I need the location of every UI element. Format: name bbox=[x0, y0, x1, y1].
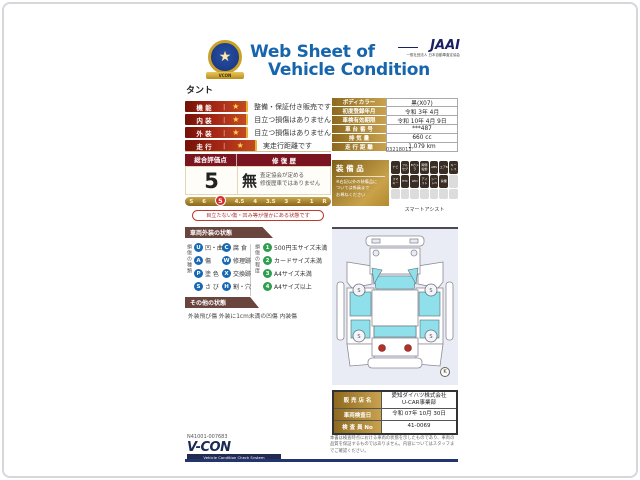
equipment-badge-empty bbox=[439, 189, 448, 199]
equipment-badge-empty bbox=[449, 175, 458, 188]
rating-desc: 実走行距離です bbox=[263, 141, 312, 151]
legend-text: 腐 食 bbox=[233, 243, 247, 252]
scale-tick: S bbox=[189, 199, 193, 205]
equipment-note: ※右記以外の装備品に ついては係員まで お尋ねください bbox=[336, 179, 385, 198]
other-condition-text: 外装飛び傷 外装に1cm未満の凹傷 内装傷 bbox=[188, 311, 297, 320]
repair-history: 無 査定協会が定める 修復歴車ではありません bbox=[238, 167, 330, 194]
scale-tick: R bbox=[322, 199, 326, 205]
jaai-logo: JAAI bbox=[416, 38, 460, 53]
legend-text: 塗 色 bbox=[205, 269, 219, 278]
table-row: 車検有効期限 令和 10年 4月 9日 bbox=[332, 116, 458, 125]
grade-note-balloon: 目立たない傷・凹み等が僅かにある状態です bbox=[192, 210, 324, 221]
equipment-badge: アイ​スト bbox=[420, 175, 429, 188]
rating-chip: 走 行 | ★ bbox=[185, 140, 257, 151]
spec-label: 排 気 量 bbox=[332, 134, 386, 143]
badge-row: スマ​キー ETC LED アイ​スト シー​トH 禁煙 bbox=[391, 175, 458, 188]
legend-item: S さ び bbox=[194, 282, 219, 291]
table-row: 販 売 店 名 愛知ダイハツ株式会社 U-CAR事業部 bbox=[334, 392, 456, 409]
equipment-badge: フル​セグ bbox=[401, 161, 410, 174]
equipment-badge: キー​レス bbox=[449, 161, 458, 174]
star-icon: ★ bbox=[225, 141, 255, 150]
vcon-emblem-icon: ★ bbox=[208, 40, 242, 74]
equipment-badge: エアB bbox=[439, 161, 448, 174]
spec-table: ボディカラー 黒(X07) 初度登録年月 令和 3年 4月 車検有効期限 令和 … bbox=[332, 98, 458, 152]
score-header: 総合評価点 bbox=[185, 154, 237, 166]
rating-chip: 機 能 | ★ bbox=[185, 101, 248, 112]
badge-row bbox=[391, 189, 458, 199]
page-title-line1: Web Sheet of bbox=[250, 42, 375, 62]
jaai-subtitle: 一般社団法人 日本自動車査定協会 bbox=[390, 53, 460, 58]
equipment-badge-empty bbox=[410, 189, 419, 199]
page-title-line2: Vehicle Condition bbox=[268, 60, 430, 80]
legend-text: さ び bbox=[205, 282, 219, 291]
section-exterior-condition: 車両外装の状態 bbox=[185, 227, 273, 238]
equipment-footnote: スマートアシスト bbox=[391, 206, 458, 213]
legend-item: 1 500円玉サイズ未満 bbox=[263, 243, 327, 252]
badge-row: ナビ フル​セグ Bカ​メラ 両側​電動 ABS エアB キー​レス bbox=[391, 161, 458, 174]
disclaimer-text: 本書は検査時点における車両の状態を示したものであり、車両の品質を保証するものでは… bbox=[330, 436, 458, 455]
rating-desc: 目立つ損傷はありません bbox=[254, 115, 331, 125]
rating-row-exterior: 外 装 | ★ 目立つ損傷はありません bbox=[185, 127, 331, 138]
legend-text: A4サイズ以上 bbox=[274, 282, 312, 291]
jaai-dash bbox=[398, 47, 418, 48]
degree-code-icon: 2 bbox=[263, 256, 272, 265]
evaluation-score: 5 bbox=[186, 167, 238, 194]
equipment-box: 装 備 品 ※右記以外の装備品に ついては係員まで お尋ねください bbox=[332, 160, 389, 206]
scale-tick: 4 bbox=[253, 199, 257, 205]
sales-label: 検 査 員 No bbox=[334, 421, 382, 433]
rating-desc: 整備・保証付き販売です bbox=[254, 102, 331, 112]
legend-text: 交換跡 bbox=[233, 269, 251, 278]
equipment-badge: ナビ bbox=[391, 161, 400, 174]
svg-text:S: S bbox=[429, 288, 432, 294]
legend-item: 3 A4サイズ未満 bbox=[263, 269, 312, 278]
emblem-ribbon: VCON bbox=[206, 72, 244, 79]
damage-type-label: 損傷の種類 bbox=[186, 244, 193, 274]
legend-item: A 傷 bbox=[194, 256, 211, 265]
table-row: 排 気 量 660 cc bbox=[332, 134, 458, 143]
spec-label: 走 行 距 離 bbox=[332, 143, 386, 152]
degree-code-icon: 1 bbox=[263, 243, 272, 252]
damage-code-icon: W bbox=[222, 256, 231, 265]
vehicle-name: タント bbox=[186, 83, 213, 96]
equipment-badge: 禁煙 bbox=[439, 175, 448, 188]
emblem-star-icon: ★ bbox=[219, 49, 232, 65]
damage-code-icon: A bbox=[194, 256, 203, 265]
evaluation-header: 総合評価点 修 復 歴 bbox=[185, 154, 331, 166]
rating-row-function: 機 能 | ★ 整備・保証付き販売です bbox=[185, 101, 331, 112]
scale-tick: 6 bbox=[202, 199, 206, 205]
rating-label: 走 行 bbox=[185, 141, 223, 151]
star-icon: ★ bbox=[225, 102, 246, 111]
scale-tick: 3.5 bbox=[266, 199, 276, 205]
legend-text: 凹・曲 bbox=[205, 243, 223, 252]
damage-degree-label: 損傷の程度 bbox=[254, 244, 261, 274]
degree-code-icon: 3 bbox=[263, 269, 272, 278]
table-row: 車 台 番 号 ***487 bbox=[332, 125, 458, 134]
scale-tick: 2 bbox=[297, 199, 301, 205]
table-row: 車両検査日 令和 07年 10月 30日 bbox=[334, 409, 456, 421]
spec-label: ボディカラー bbox=[332, 98, 386, 107]
repair-desc: 査定協会が定める 修復歴車ではありません bbox=[260, 173, 320, 187]
rating-row-interior: 内 装 | ★ 目立つ損傷はありません bbox=[185, 114, 331, 125]
legend-text: 割・穴 bbox=[233, 282, 251, 291]
scale-tick: 4.5 bbox=[235, 199, 245, 205]
legend-text: 傷 bbox=[205, 256, 211, 265]
table-row: 検 査 員 No 41-0069 bbox=[334, 421, 456, 433]
rating-row-mileage: 走 行 | ★ 実走行距離です bbox=[185, 140, 331, 151]
rating-chip: 内 装 | ★ bbox=[185, 114, 248, 125]
damage-code-icon: U bbox=[194, 243, 203, 252]
equipment-badge: LED bbox=[410, 175, 419, 188]
legend-item: X 交換跡 bbox=[222, 269, 251, 278]
sales-value: 令和 07年 10月 30日 bbox=[382, 409, 456, 420]
legend-item: 2 カードサイズ未満 bbox=[263, 256, 322, 265]
bottom-rule bbox=[185, 459, 458, 462]
scale-tick-selected: 5 bbox=[215, 195, 226, 206]
spec-label: 初度登録年月 bbox=[332, 107, 386, 116]
equipment-badge: Bカ​メラ bbox=[410, 161, 419, 174]
equipment-badge-empty bbox=[391, 189, 400, 199]
legend-item: P 塗 色 bbox=[194, 269, 219, 278]
svg-text:S: S bbox=[357, 288, 360, 294]
legend-item: U 凹・曲 bbox=[194, 243, 223, 252]
legend-text: A4サイズ未満 bbox=[274, 269, 312, 278]
equipment-badge: シー​トH bbox=[430, 175, 439, 188]
damage-code-icon: H bbox=[222, 282, 231, 291]
damage-code-icon: P bbox=[194, 269, 203, 278]
car-diagram-panel: SS SS K bbox=[332, 227, 458, 385]
damage-code-icon: X bbox=[222, 269, 231, 278]
spec-serial-number: 03218013 bbox=[386, 147, 411, 153]
legend-item: H 割・穴 bbox=[222, 282, 251, 291]
spec-label: 車検有効期限 bbox=[332, 116, 386, 125]
equipment-badge: ABS bbox=[430, 161, 439, 174]
sales-table: 販 売 店 名 愛知ダイハツ株式会社 U-CAR事業部 車両検査日 令和 07年… bbox=[332, 390, 458, 435]
damage-code-icon: C bbox=[222, 243, 231, 252]
rating-label: 内 装 bbox=[185, 115, 223, 125]
equipment-badge: 両側​電動 bbox=[420, 161, 429, 174]
svg-text:S: S bbox=[357, 334, 360, 340]
damage-code-icon: S bbox=[194, 282, 203, 291]
scale-tick: 1 bbox=[310, 199, 314, 205]
rating-label: 機 能 bbox=[185, 102, 223, 112]
legend-item: C 腐 食 bbox=[222, 243, 247, 252]
repair-none: 無 bbox=[242, 170, 257, 191]
sales-label: 販 売 店 名 bbox=[334, 392, 382, 408]
star-icon: ★ bbox=[225, 128, 246, 137]
equipment-badge-empty bbox=[449, 189, 458, 199]
spec-value: ***487 bbox=[386, 125, 458, 134]
spec-value: 令和 10年 4月 9日 bbox=[386, 116, 458, 125]
sales-value: 愛知ダイハツ株式会社 U-CAR事業部 bbox=[382, 392, 456, 408]
legend-item: 4 A4サイズ以上 bbox=[263, 282, 312, 291]
sales-value: 41-0069 bbox=[382, 421, 456, 433]
star-icon: ★ bbox=[225, 115, 246, 124]
spec-label: 車 台 番 号 bbox=[332, 125, 386, 134]
evaluation-body: 5 無 査定協会が定める 修復歴車ではありません bbox=[185, 166, 331, 195]
equipment-title: 装 備 品 bbox=[336, 163, 385, 177]
rating-label: 外 装 bbox=[185, 128, 223, 138]
equipment-badge: スマ​キー bbox=[391, 175, 400, 188]
equipment-badge-empty bbox=[401, 189, 410, 199]
grade-scale: S 6 5 4.5 4 3.5 3 2 1 R bbox=[185, 197, 331, 206]
rating-desc: 目立つ損傷はありません bbox=[254, 128, 331, 138]
sales-label: 車両検査日 bbox=[334, 409, 382, 420]
scale-tick: 3 bbox=[284, 199, 288, 205]
car-diagram: SS SS bbox=[332, 229, 458, 385]
repair-header: 修 復 歴 bbox=[237, 155, 331, 165]
legend-text: 修理跡 bbox=[233, 256, 251, 265]
equipment-badge-empty bbox=[420, 189, 429, 199]
spec-value: 660 cc bbox=[386, 134, 458, 143]
legend-item: W 修理跡 bbox=[222, 256, 251, 265]
legend-text: カードサイズ未満 bbox=[274, 256, 322, 265]
equipment-badge-grid: ナビ フル​セグ Bカ​メラ 両側​電動 ABS エアB キー​レス スマ​キー… bbox=[391, 161, 458, 200]
diagram-corner-mark: K bbox=[440, 367, 450, 377]
divider bbox=[185, 151, 331, 152]
vcon-logo: V-CON bbox=[187, 440, 230, 455]
rating-chip: 外 装 | ★ bbox=[185, 127, 248, 138]
svg-text:S: S bbox=[429, 334, 432, 340]
equipment-badge-empty bbox=[430, 189, 439, 199]
legend-text: 500円玉サイズ未満 bbox=[274, 243, 327, 252]
section-other-condition: その他の状態 bbox=[185, 297, 259, 308]
equipment-badge: ETC bbox=[401, 175, 410, 188]
vehicle-condition-sheet: ★ VCON Web Sheet of Vehicle Condition JA… bbox=[0, 0, 640, 480]
degree-code-icon: 4 bbox=[263, 282, 272, 291]
